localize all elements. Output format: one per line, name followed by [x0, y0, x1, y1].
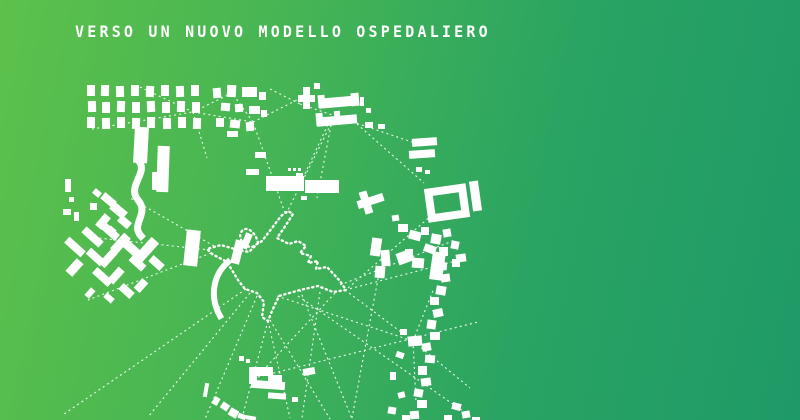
site-plan-map: [0, 0, 800, 420]
buildings-layer: [63, 83, 482, 420]
page-title: VERSO UN NUOVO MODELLO OSPEDALIERO: [75, 22, 491, 41]
